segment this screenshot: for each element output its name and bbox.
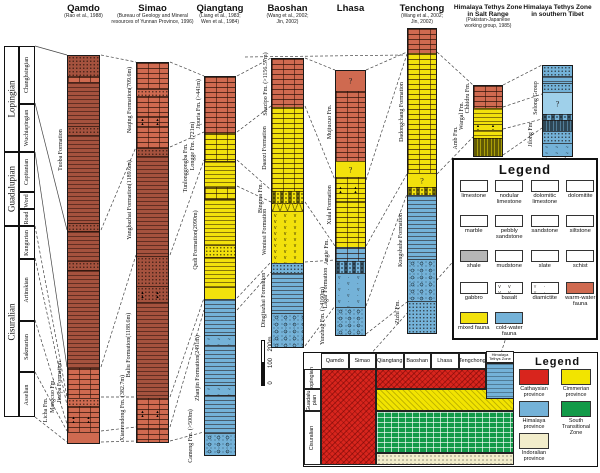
correlation-line	[35, 152, 67, 367]
correlation-line	[170, 62, 204, 76]
timescale-stage-label: Word	[24, 194, 30, 207]
formation-section	[474, 138, 502, 156]
legend-label: dolomitite	[562, 193, 598, 199]
province-legend-swatch	[561, 369, 591, 385]
formation-section	[205, 257, 235, 287]
formation-label: Jiaopa Formation	[57, 361, 63, 403]
formation-section	[137, 256, 168, 286]
formation-section	[68, 368, 99, 398]
province-row-header: Guadalu-pian	[307, 389, 319, 412]
formation-section	[68, 261, 99, 270]
formation-label: Dadongchang Formation	[399, 82, 405, 142]
column-himalaya-tethys-zone-in-salt-range: ▲ ▲ ▲ ▲	[473, 85, 503, 157]
figure-root: Legend limestonenodular limestonedolomit…	[0, 0, 600, 473]
legend-swatch: ▿ · ▿ · ▿ · ▿ · ▿ · ▿ · ▿ · ▿ · ▿ · ▿ · …	[531, 282, 559, 294]
triangle-band: ▲ ▲ ▲ ▲	[336, 186, 365, 194]
formation-section	[205, 433, 235, 455]
formation-section	[137, 96, 168, 116]
formation-section	[336, 307, 365, 335]
province-col-header: Qamdo	[321, 353, 349, 369]
formation-section	[474, 130, 502, 138]
formation-section	[68, 126, 99, 135]
formation-section	[137, 156, 168, 256]
column-citation: Jin, 2002)	[233, 20, 343, 26]
legend-label: basalt	[491, 295, 527, 301]
province-legend-swatch	[519, 433, 549, 449]
formation-section: ~ ~ ~ ~ ~ ~ ~ ~ ~ ~ ~ ~ ~ ~ ~ ~ ~ ~ ~ ~ …	[205, 335, 235, 345]
legend-label: limestone	[456, 193, 492, 199]
formation-label: Xianrendong Fm. (382.7m)	[120, 375, 126, 441]
province-region-himalaya-province	[486, 363, 514, 399]
formation-label: Jilong Fm.	[528, 121, 534, 147]
formation-section	[474, 108, 502, 124]
formation-section: ▲ ▲ ▲ ▲	[336, 177, 365, 201]
formation-section	[137, 302, 168, 398]
question-mark: ?	[349, 77, 353, 86]
formation-section: ?	[408, 173, 436, 187]
formation-label: Cameng Fm. (>500m)	[188, 409, 194, 463]
formation-section	[205, 299, 235, 335]
formation-section: v v v v v v v v v v v v v v v v v v v v …	[272, 211, 303, 263]
legend-label: marble	[456, 228, 492, 234]
legend-swatch	[566, 282, 594, 294]
correlation-line	[237, 186, 271, 202]
legend-label: diamictite	[527, 295, 563, 301]
column-himalaya-tethys-zone-in-southern-tibet: ?~ ~ ~ ~ ~ ~ ~ ~ ~ ~ ~ ~ ~ ~ ~ ~ ~ ~ ~ ~…	[542, 65, 573, 157]
timescale-series-label: Lopingian	[7, 81, 16, 118]
province-col-header: Lhasa	[431, 353, 459, 369]
scale-bar-upper	[261, 340, 265, 363]
scale-label: 0	[268, 381, 274, 384]
province-region-cathaysian-province	[376, 369, 486, 389]
legend-panel: Legend limestonenodular limestonedolomit…	[452, 158, 598, 340]
formation-section	[543, 131, 572, 143]
formation-section	[68, 270, 99, 368]
legend-swatch	[531, 215, 559, 227]
legend-swatch	[495, 250, 523, 262]
formation-section	[543, 76, 572, 83]
timescale-series-label: Cisuralian	[7, 303, 16, 340]
correlation-line	[101, 55, 136, 62]
formation-label: Yangbazhai Formation(1189.6m)	[127, 160, 133, 240]
formation-section	[474, 86, 502, 108]
province-col-header: Baoshan	[404, 353, 432, 369]
formation-label: Longge Fm. (721m)	[190, 122, 196, 171]
question-mark: ?	[349, 165, 353, 174]
legend-label: siltstone	[562, 228, 598, 234]
correlation-line	[35, 417, 67, 442]
legend-swatch	[460, 282, 488, 294]
formation-label: Xiala Formation	[327, 185, 333, 225]
formation-section	[336, 91, 365, 161]
formation-section	[68, 135, 99, 223]
correlation-line	[101, 427, 136, 431]
formation-section	[205, 77, 235, 133]
wavy-pattern-glyphs: ~ ~ ~ ~ ~ ~ ~ ~ ~ ~ ~ ~ ~ ~ ~ ~ ~ ~ ~ ~ …	[205, 336, 235, 345]
province-region-indoralian-province	[376, 453, 514, 465]
formation-section: ?	[336, 161, 365, 177]
correlation-line	[503, 119, 542, 129]
column-qiangtang: ~ ~ ~ ~ ~ ~ ~ ~ ~ ~ ~ ~ ~ ~ ~ ~ ~ ~ ~ ~ …	[204, 76, 236, 456]
formation-section	[408, 53, 436, 173]
province-legend-label: Cathaysian province	[513, 386, 555, 398]
province-legend-swatch	[561, 401, 591, 417]
province-legend-swatch	[519, 369, 549, 385]
formation-label: Mujiucuo Fm.	[327, 105, 333, 139]
formation-section	[272, 59, 303, 107]
formation-section: ~ ~ ~ ~ ~ ~ ~ ~ ~ ~ ~ ~ ~ ~ ~ ~ ~ ~ ~ ~ …	[543, 143, 572, 156]
formation-section	[336, 201, 365, 247]
triangle-band: ▲ ▲ ▲ ▲	[137, 291, 168, 299]
formation-section	[137, 89, 168, 96]
scale-bar-lower	[261, 363, 265, 386]
legend-label: shale	[456, 263, 492, 269]
formation-section: ▿ · ▿ · ▿ · ▿ · ▿ · ▿ · ▿ · ▿ · ▿ · ▿ · …	[336, 273, 365, 307]
legend-label: cold-water fauna	[491, 325, 527, 337]
province-legend-label: South Transitional Zone	[555, 418, 597, 436]
column-tenchong: ?	[407, 28, 437, 334]
diamict-pattern-glyphs: ▿ · ▿ · ▿ · ▿ · ▿ · ▿ · ▿ · ▿ · ▿ · ▿ · …	[336, 274, 365, 307]
legend-label: schist	[562, 263, 598, 269]
formation-section	[205, 245, 235, 257]
formation-section: ▲ ▲ ▲ ▲	[68, 406, 99, 432]
province-col-header: Qiangtang	[376, 353, 404, 369]
formation-section: ▲ ▲ ▲ ▲	[137, 116, 168, 126]
wavy-pattern-glyphs: ~ ~ ~ ~ ~ ~ ~ ~ ~ ~ ~ ~ ~ ~ ~ ~ ~ ~ ~ ~ …	[205, 386, 235, 395]
formation-section	[408, 29, 436, 53]
formation-section	[205, 133, 235, 161]
legend-label: sandstone	[527, 228, 563, 234]
formation-label: Baliu Formation(1188.6m)	[126, 313, 132, 377]
formation-label: Dingjiazhai Formation	[261, 273, 267, 328]
timescale-stage-label: Kungurian	[24, 230, 30, 256]
column-lhasa: ??▲ ▲ ▲ ▲▿ · ▿ · ▿ · ▿ · ▿ · ▿ · ▿ · ▿ ·…	[335, 70, 366, 336]
question-mark: ?	[420, 176, 424, 185]
formation-section	[137, 428, 168, 442]
correlation-line	[35, 46, 67, 55]
formation-section	[408, 187, 436, 195]
timescale-stage-label: Wuchiapingian	[24, 110, 30, 146]
province-row-header: Cisuralian	[310, 426, 316, 450]
question-mark: ?	[556, 99, 560, 108]
diamict-pattern-glyphs: ▿ · ▿ · ▿ · ▿ · ▿ · ▿ · ▿ · ▿ · ▿ · ▿ · …	[532, 283, 558, 293]
column-simao: ▲ ▲ ▲ ▲▲ ▲ ▲ ▲▲ ▲ ▲ ▲	[136, 62, 169, 443]
province-col-header-himalaya: HimalayaTethys Zone	[486, 351, 514, 363]
formation-section	[137, 63, 168, 89]
legend-swatch	[460, 250, 488, 262]
formation-section	[205, 161, 235, 187]
formation-section	[543, 66, 572, 76]
formation-section	[68, 231, 99, 261]
formation-label: Mangcuo Fm.	[50, 379, 56, 413]
formation-label: Chhidru Fm.	[465, 83, 471, 114]
triangle-band: ▲ ▲ ▲ ▲	[137, 118, 168, 126]
formation-section	[336, 261, 365, 273]
formation-section	[272, 273, 303, 313]
timescale-series-label: Guadalupian	[7, 166, 16, 212]
correlation-line	[305, 58, 335, 70]
correlation-line	[305, 260, 335, 262]
legend-swatch	[531, 250, 559, 262]
legend-swatch	[566, 215, 594, 227]
wavy-pattern-glyphs: ~ ~ ~ ~ ~ ~ ~ ~ ~ ~ ~ ~ ~ ~ ~ ~ ~ ~ ~ ~ …	[543, 144, 572, 156]
province-col-header: Tengchong	[459, 353, 487, 369]
formation-section	[68, 223, 99, 231]
province-legend-label: Cimmerian province	[555, 386, 597, 398]
formation-section	[68, 432, 99, 443]
timescale-stage-label: Sakmarian	[24, 334, 30, 360]
formation-section	[137, 148, 168, 156]
legend-swatch	[495, 312, 523, 324]
column-title: in southern Tibet	[503, 11, 600, 18]
formation-label: Zizhi Fm.	[395, 300, 401, 324]
scale-label: 100	[268, 358, 274, 368]
legend-label: gabbro	[456, 295, 492, 301]
triangle-band: ▲ ▲ ▲ ▲	[68, 416, 99, 424]
formation-section	[272, 107, 303, 191]
basalt-pattern-glyphs: v v v v v v v v v v v v v v v v v v v v	[496, 283, 522, 293]
formation-section	[272, 203, 303, 211]
column-title: Himalaya Tethys Zone	[503, 4, 600, 11]
formation-section	[205, 199, 235, 245]
formation-label: Wargal Fm.	[459, 102, 465, 130]
formation-label: Qudi Formation(2090m)	[193, 210, 199, 269]
formation-label: Tunlonggongba Fm.	[183, 144, 189, 193]
column-baoshan: v v v v v v v v v v v v v v v v v v v v …	[271, 58, 304, 348]
formation-section: ▲ ▲ ▲ ▲	[137, 286, 168, 302]
formation-section	[205, 345, 235, 385]
formation-section: ?	[543, 92, 572, 114]
correlation-line	[366, 52, 407, 70]
legend-swatch	[531, 180, 559, 192]
triangle-band: ▲ ▲ ▲ ▲	[137, 410, 168, 418]
legend-swatch	[460, 312, 488, 324]
formation-label: Shazipo Fm. (>1156.57m)	[263, 52, 269, 115]
legend-swatch	[460, 180, 488, 192]
province-region-cathaysian-province	[321, 369, 376, 465]
legend-label: warm-water fauna	[562, 295, 598, 307]
formation-label: Daaozi Formation	[262, 126, 268, 170]
formation-section	[205, 187, 235, 199]
correlation-line	[101, 441, 136, 442]
legend-label: mudstone	[491, 263, 527, 269]
formation-label: Licha Fm.	[43, 398, 49, 423]
province-region-south-transitional-zone	[376, 411, 514, 453]
formation-label: Zhanjin Formation(2491m)	[195, 335, 201, 401]
column-citation: working group, 1985)	[433, 24, 543, 30]
legend-label: nodular limestone	[491, 193, 527, 205]
formation-section	[272, 191, 303, 203]
formation-section: ▲ ▲ ▲ ▲	[137, 398, 168, 428]
legend-swatch: v v v v v v v v v v v v v v v v v v v v	[495, 282, 523, 294]
province-panel: Legend LopingianGuadalu-pianCisuralianQa…	[303, 352, 598, 467]
formation-section	[543, 120, 572, 131]
basalt-pattern-glyphs: v v v v v v v v v v v v v v v v v v v v …	[272, 212, 303, 263]
legend-swatch	[460, 215, 488, 227]
formation-section	[272, 263, 303, 273]
formation-section: ~ ~ ~ ~ ~ ~ ~ ~ ~ ~ ~ ~ ~ ~ ~ ~ ~ ~ ~ ~ …	[205, 385, 235, 395]
formation-section	[68, 82, 99, 126]
formation-section	[408, 301, 436, 333]
formation-section	[68, 56, 99, 76]
formation-section	[543, 83, 572, 92]
column-qamdo: ▲ ▲ ▲ ▲	[67, 55, 100, 444]
timescale-stage-label: Artinskian	[24, 277, 30, 302]
formation-label: Tuoba Formation	[58, 129, 64, 171]
timescale-stage-label: Capitanian	[24, 159, 30, 185]
timescale-stage-label: Road	[24, 211, 30, 224]
scale-label: 200m	[268, 336, 274, 351]
province-legend-label: Indoralian province	[513, 450, 555, 462]
formation-label: Kongshuhe Formation	[398, 213, 404, 267]
legend-swatch	[566, 250, 594, 262]
legend-title: Legend	[454, 162, 596, 177]
formation-section	[272, 313, 303, 347]
formation-label: Naqing Formation(709.6m)	[127, 67, 133, 133]
formation-section	[205, 287, 235, 299]
province-col-header: Simao	[349, 353, 377, 369]
formation-section	[408, 259, 436, 301]
legend-label: slate	[527, 263, 563, 269]
formation-label: Angie Fm.	[324, 239, 330, 265]
province-legend-label: Himalaya province	[513, 418, 555, 430]
province-legend-title: Legend	[516, 356, 599, 368]
formation-label: Amb Fm.	[453, 126, 459, 149]
formation-label: Jipuria Fm. (>441m)	[196, 79, 202, 129]
timescale-stage-label: Asselian	[24, 384, 30, 405]
formation-section	[137, 126, 168, 148]
legend-swatch	[566, 180, 594, 192]
formation-label: Yunzhug Fm. (>4160m)	[320, 287, 326, 345]
formation-section	[336, 247, 365, 261]
formation-section	[68, 398, 99, 406]
formation-label: Woniusi Formation	[262, 209, 268, 255]
formation-label: Selong Group	[533, 81, 539, 115]
column-header: Himalaya Tethys Zonein southern Tibet	[503, 4, 600, 18]
province-legend-swatch	[519, 401, 549, 417]
legend-label: mixed fauna	[456, 325, 492, 331]
correlation-line	[437, 52, 473, 85]
legend-swatch	[495, 180, 523, 192]
formation-section: ?	[336, 71, 365, 91]
legend-label: dolomitic limestone	[527, 193, 563, 205]
formation-section	[408, 195, 436, 259]
correlation-line	[503, 128, 542, 155]
legend-swatch	[495, 215, 523, 227]
timescale-stage-label: Changhsingian	[24, 57, 30, 93]
legend-label: pebbly sandstone	[491, 228, 527, 240]
formation-section	[205, 395, 235, 433]
